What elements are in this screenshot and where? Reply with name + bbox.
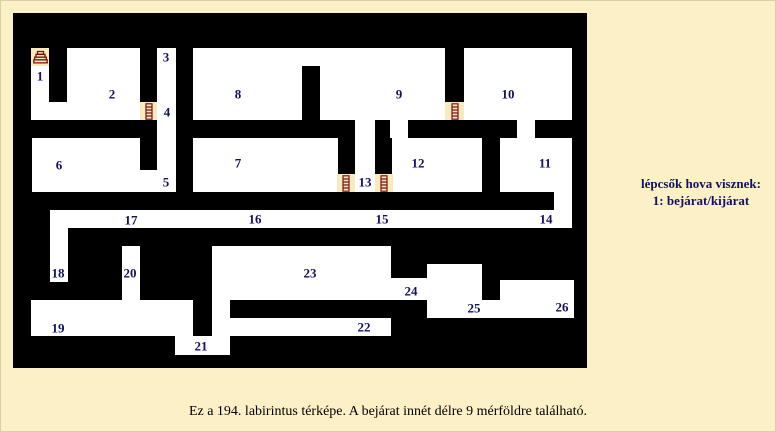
room-number-label: 6 xyxy=(56,159,63,172)
room-number-label: 17 xyxy=(125,214,138,227)
room xyxy=(157,48,176,192)
room-number-label: 20 xyxy=(124,267,137,280)
stair-cell xyxy=(337,174,355,192)
room xyxy=(500,138,572,192)
room xyxy=(67,48,140,120)
room-number-label: 12 xyxy=(412,157,425,170)
labyrinth-page: 1234567891011121314151617181920212223242… xyxy=(0,0,776,432)
room-number-label: 1 xyxy=(37,70,44,83)
stair-cell xyxy=(375,174,393,192)
room-number-label: 16 xyxy=(249,213,262,226)
room xyxy=(500,280,574,300)
room xyxy=(140,170,157,192)
room-number-label: 25 xyxy=(468,302,481,315)
room-number-label: 24 xyxy=(405,285,418,298)
room-number-label: 9 xyxy=(396,88,403,101)
room xyxy=(212,246,391,300)
ladder-icon xyxy=(451,103,459,120)
room-number-label: 2 xyxy=(109,88,116,101)
room xyxy=(193,138,338,192)
room xyxy=(390,120,408,138)
room xyxy=(212,300,230,336)
room-number-label: 7 xyxy=(235,157,242,170)
ladder-icon xyxy=(145,103,153,120)
room-number-label: 22 xyxy=(358,321,371,334)
room-number-label: 23 xyxy=(304,267,317,280)
room-number-label: 26 xyxy=(556,301,569,314)
map-caption: Ez a 194. labirintus térképe. A bejárat … xyxy=(0,404,776,420)
room-number-label: 11 xyxy=(539,157,551,170)
room-number-label: 15 xyxy=(376,213,389,226)
legend-line-1: lépcsők hova visznek: xyxy=(612,175,776,192)
room xyxy=(392,138,482,192)
wall-patch xyxy=(302,66,320,120)
room-number-label: 8 xyxy=(235,88,242,101)
room xyxy=(49,102,67,120)
room xyxy=(464,48,572,120)
stairs-icon xyxy=(33,50,48,64)
room-number-label: 5 xyxy=(163,176,170,189)
room-number-label: 18 xyxy=(52,267,65,280)
room xyxy=(554,192,572,210)
room xyxy=(427,264,482,300)
stair-cell xyxy=(140,102,157,120)
stair-cell xyxy=(445,102,464,120)
legend-text: lépcsők hova visznek: 1: bejárat/kijárat xyxy=(612,175,776,209)
room-number-label: 14 xyxy=(540,213,553,226)
stair-cell xyxy=(31,48,49,66)
room-number-label: 4 xyxy=(164,106,171,119)
ladder-icon xyxy=(342,175,350,192)
room-number-label: 3 xyxy=(163,51,170,64)
room-number-label: 13 xyxy=(359,176,372,189)
labyrinth-map: 1234567891011121314151617181920212223242… xyxy=(13,13,587,368)
room xyxy=(517,120,535,138)
room-number-label: 19 xyxy=(52,322,65,335)
room-number-label: 10 xyxy=(502,88,515,101)
room xyxy=(32,138,140,192)
room-number-label: 21 xyxy=(195,340,208,353)
legend-line-2: 1: bejárat/kijárat xyxy=(612,192,776,209)
ladder-icon xyxy=(380,175,388,192)
room xyxy=(427,300,574,318)
